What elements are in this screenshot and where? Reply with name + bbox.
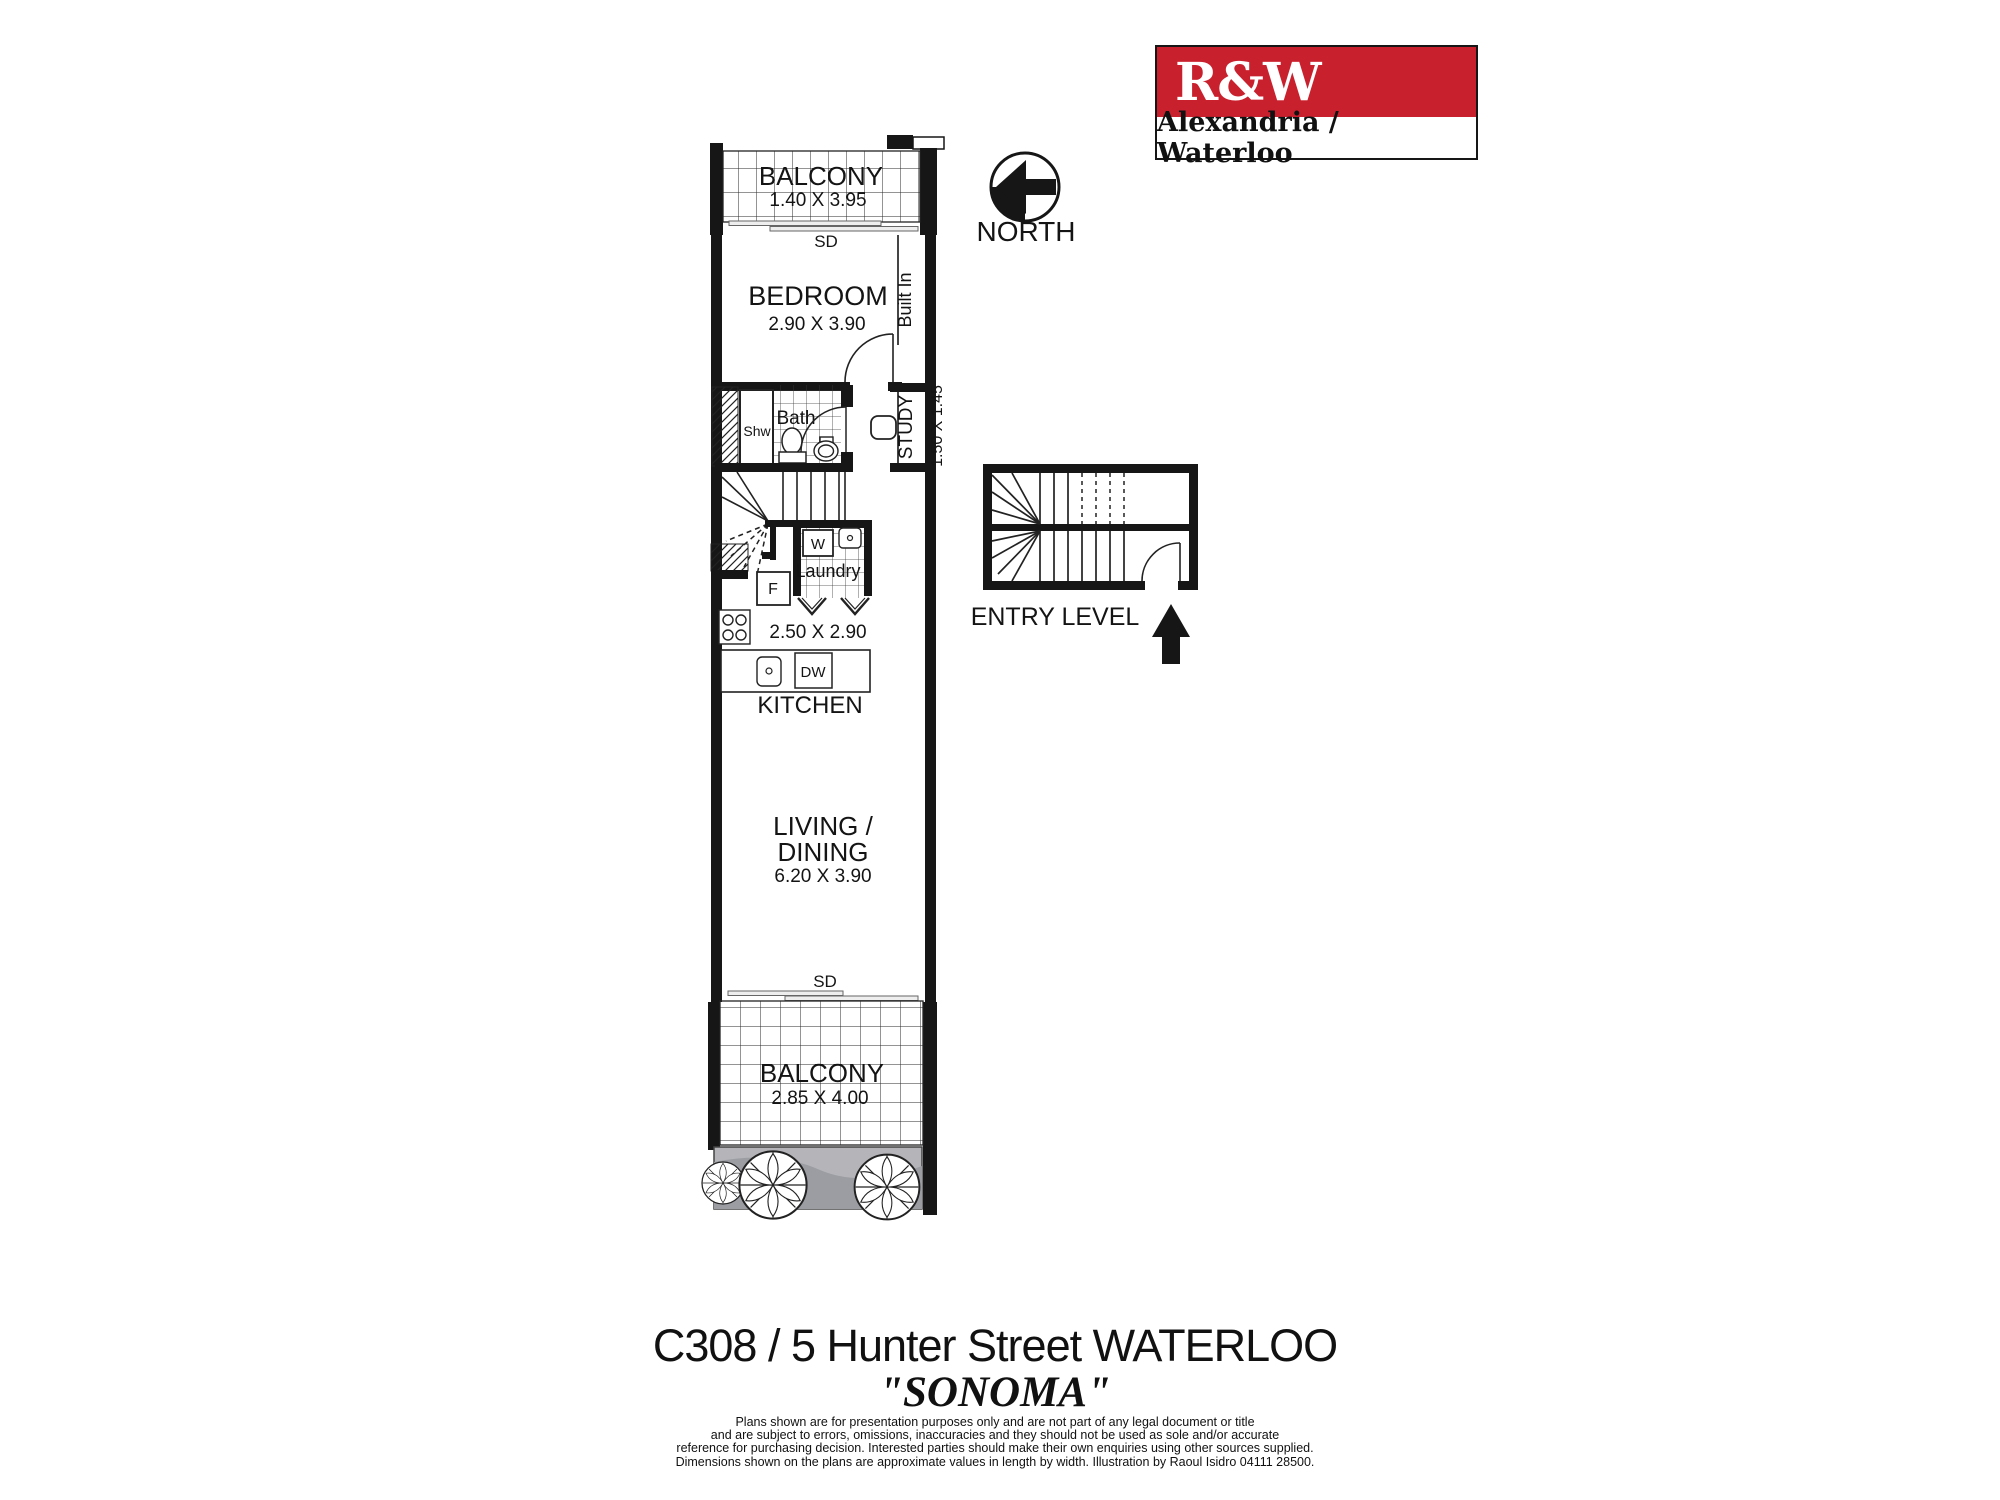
bathroom: Shw Bath [712, 385, 853, 472]
fridge-label: F [768, 581, 778, 598]
dishwasher-label: DW [801, 664, 827, 681]
property-address: C308 / 5 Hunter Street WATERLOO [0, 1320, 1990, 1372]
bedroom-dims: 2.90 X 3.90 [768, 314, 865, 335]
entry-level-label: ENTRY LEVEL [971, 603, 1140, 631]
washer-label: W [811, 536, 826, 553]
laundry-label: Laundry [795, 561, 860, 581]
north-compass: NORTH [976, 153, 1075, 247]
bedroom-label: BEDROOM [748, 281, 888, 311]
laundry-tub-icon [839, 528, 861, 548]
tree-icon [702, 1162, 744, 1204]
floorplan-page: BALCONY 1.40 X 3.95 SD BEDROOM 2.90 X 3.… [0, 0, 2000, 1500]
living-label-2: DINING [778, 837, 869, 867]
logo-brand-text: R&W [1157, 52, 1321, 113]
north-label: NORTH [976, 216, 1075, 247]
bedroom-door-icon [845, 334, 893, 382]
living-dims: 6.20 X 3.90 [774, 866, 871, 887]
balcony-top-label: BALCONY [759, 161, 883, 191]
tree-icon [739, 1151, 806, 1218]
balcony-top-dims: 1.40 X 3.95 [769, 190, 866, 211]
tree-icon [855, 1155, 920, 1220]
kitchen-dims: 2.50 X 2.90 [769, 622, 866, 643]
kitchen-label: KITCHEN [757, 692, 862, 719]
balcony-bottom-dims: 2.85 X 4.00 [771, 1088, 868, 1109]
logo-office-text: Alexandria / Waterloo [1157, 117, 1476, 158]
bedroom: BEDROOM 2.90 X 3.90 Built In [715, 235, 915, 391]
shower-label: Shw [743, 423, 771, 439]
study-stool-icon [871, 416, 896, 439]
built-in-label: Built In [895, 272, 915, 327]
sd-top-label: SD [814, 232, 838, 251]
living-dining: LIVING / DINING 6.20 X 3.90 SD [728, 811, 918, 1001]
bifold-doors-icon [798, 598, 869, 614]
cooktop-icon [719, 610, 750, 644]
sliding-door-bottom-icon [728, 991, 918, 1001]
balcony-bottom-label: BALCONY [760, 1058, 884, 1088]
entry-level: ENTRY LEVEL [971, 464, 1198, 664]
sd-bottom-label: SD [813, 972, 837, 991]
disclaimer-line: Dimensions shown on the plans are approx… [0, 1456, 1990, 1469]
floorplan-drawing: BALCONY 1.40 X 3.95 SD BEDROOM 2.90 X 3.… [0, 0, 2000, 1500]
agency-logo: R&W Alexandria / Waterloo [1155, 45, 1478, 160]
entry-door-icon [1142, 543, 1180, 581]
balcony-top: BALCONY 1.40 X 3.95 SD [723, 151, 920, 251]
disclaimer: Plans shown are for presentation purpose… [0, 1416, 1990, 1469]
study-label: STUDY [896, 394, 917, 459]
balcony-bottom: BALCONY 2.85 X 4.00 [702, 1001, 923, 1219]
building-name: "SONOMA" [0, 1368, 1990, 1417]
study-dims: 1.50 X 1.45 [929, 385, 946, 467]
disclaimer-line: reference for purchasing decision. Inter… [0, 1442, 1990, 1455]
kitchen-sink-icon [757, 657, 781, 686]
study: STUDY 1.50 X 1.45 [871, 383, 946, 472]
entry-arrow-icon [1152, 604, 1190, 664]
kitchen: 2.50 X 2.90 DW KITCHEN [719, 610, 870, 719]
